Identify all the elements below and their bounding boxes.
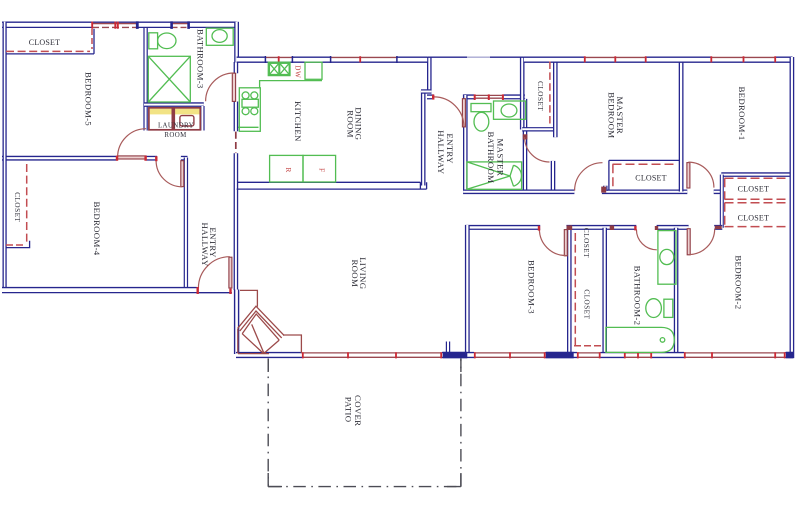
- svg-text:CLOSET: CLOSET: [29, 38, 60, 47]
- svg-text:KITCHEN: KITCHEN: [293, 101, 303, 142]
- svg-text:BEDROOM-2: BEDROOM-2: [734, 255, 744, 309]
- svg-text:CLOSET: CLOSET: [738, 185, 769, 194]
- svg-text:BEDROOM-1: BEDROOM-1: [737, 86, 747, 140]
- svg-text:BEDROOM-4: BEDROOM-4: [92, 201, 102, 255]
- svg-text:ROOM: ROOM: [350, 259, 360, 287]
- svg-text:CLOSET: CLOSET: [582, 228, 590, 258]
- svg-text:BATHROOM: BATHROOM: [486, 132, 496, 184]
- svg-text:R: R: [284, 168, 292, 173]
- svg-text:ROOM: ROOM: [345, 110, 355, 138]
- svg-text:BATHROOM-3: BATHROOM-3: [195, 29, 205, 89]
- svg-text:CLOSET: CLOSET: [536, 81, 544, 111]
- svg-text:DW: DW: [293, 65, 301, 78]
- svg-text:HALLWAY: HALLWAY: [200, 223, 210, 267]
- svg-text:CLOSET: CLOSET: [738, 213, 769, 222]
- svg-text:CLOSET: CLOSET: [13, 192, 21, 222]
- svg-text:COVER: COVER: [353, 395, 363, 426]
- svg-text:BEDROOM-5: BEDROOM-5: [84, 72, 94, 126]
- svg-text:CLOSET: CLOSET: [582, 289, 590, 319]
- svg-text:BEDROOM: BEDROOM: [606, 92, 616, 138]
- svg-text:LAUNDRY: LAUNDRY: [158, 122, 194, 129]
- svg-text:PATIO: PATIO: [344, 397, 354, 423]
- svg-text:ROOM: ROOM: [164, 132, 186, 139]
- svg-text:BEDROOM-3: BEDROOM-3: [526, 260, 536, 314]
- svg-text:BATHROOM-2: BATHROOM-2: [633, 266, 643, 326]
- svg-text:F: F: [318, 168, 326, 173]
- svg-text:CLOSET: CLOSET: [635, 174, 666, 183]
- svg-text:HALLWAY: HALLWAY: [436, 130, 446, 174]
